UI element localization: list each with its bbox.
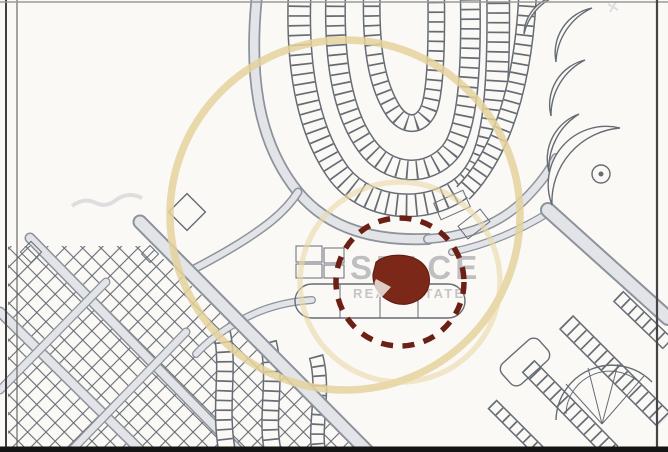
highlighted-plot xyxy=(373,255,430,304)
site-plan-map: SPACE REAL ESTATE xyxy=(0,0,668,452)
site-plan-screenshot: SPACE REAL ESTATE xyxy=(0,0,668,452)
